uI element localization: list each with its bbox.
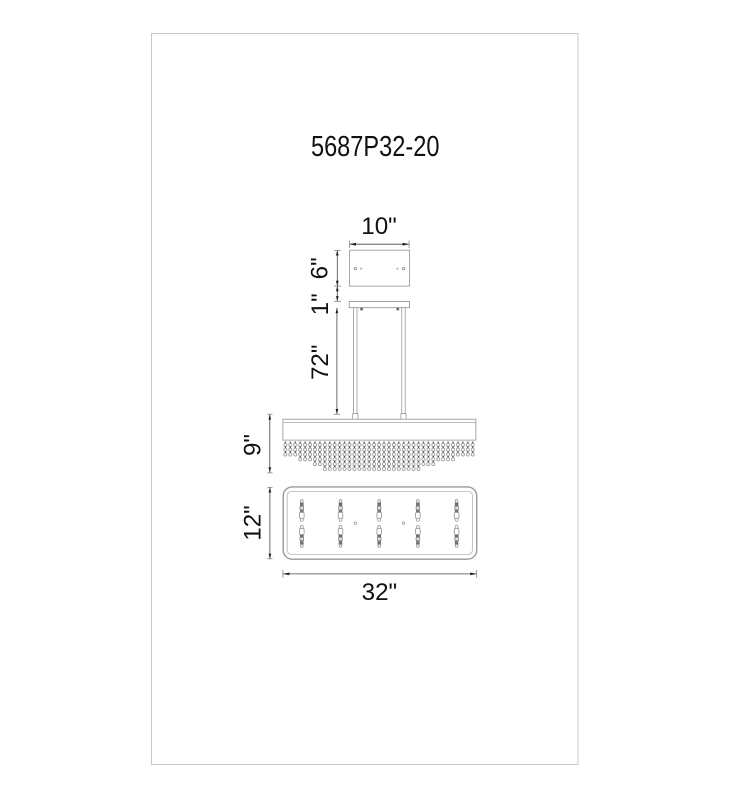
svg-text:6": 6" [307,257,334,279]
svg-text:5687P32-20: 5687P32-20 [311,130,439,163]
svg-text:9": 9" [240,434,267,456]
svg-text:1": 1" [307,293,334,315]
svg-text:32": 32" [362,579,398,606]
svg-text:12": 12" [240,505,267,541]
svg-text:10": 10" [361,213,397,240]
svg-text:72": 72" [307,345,334,381]
